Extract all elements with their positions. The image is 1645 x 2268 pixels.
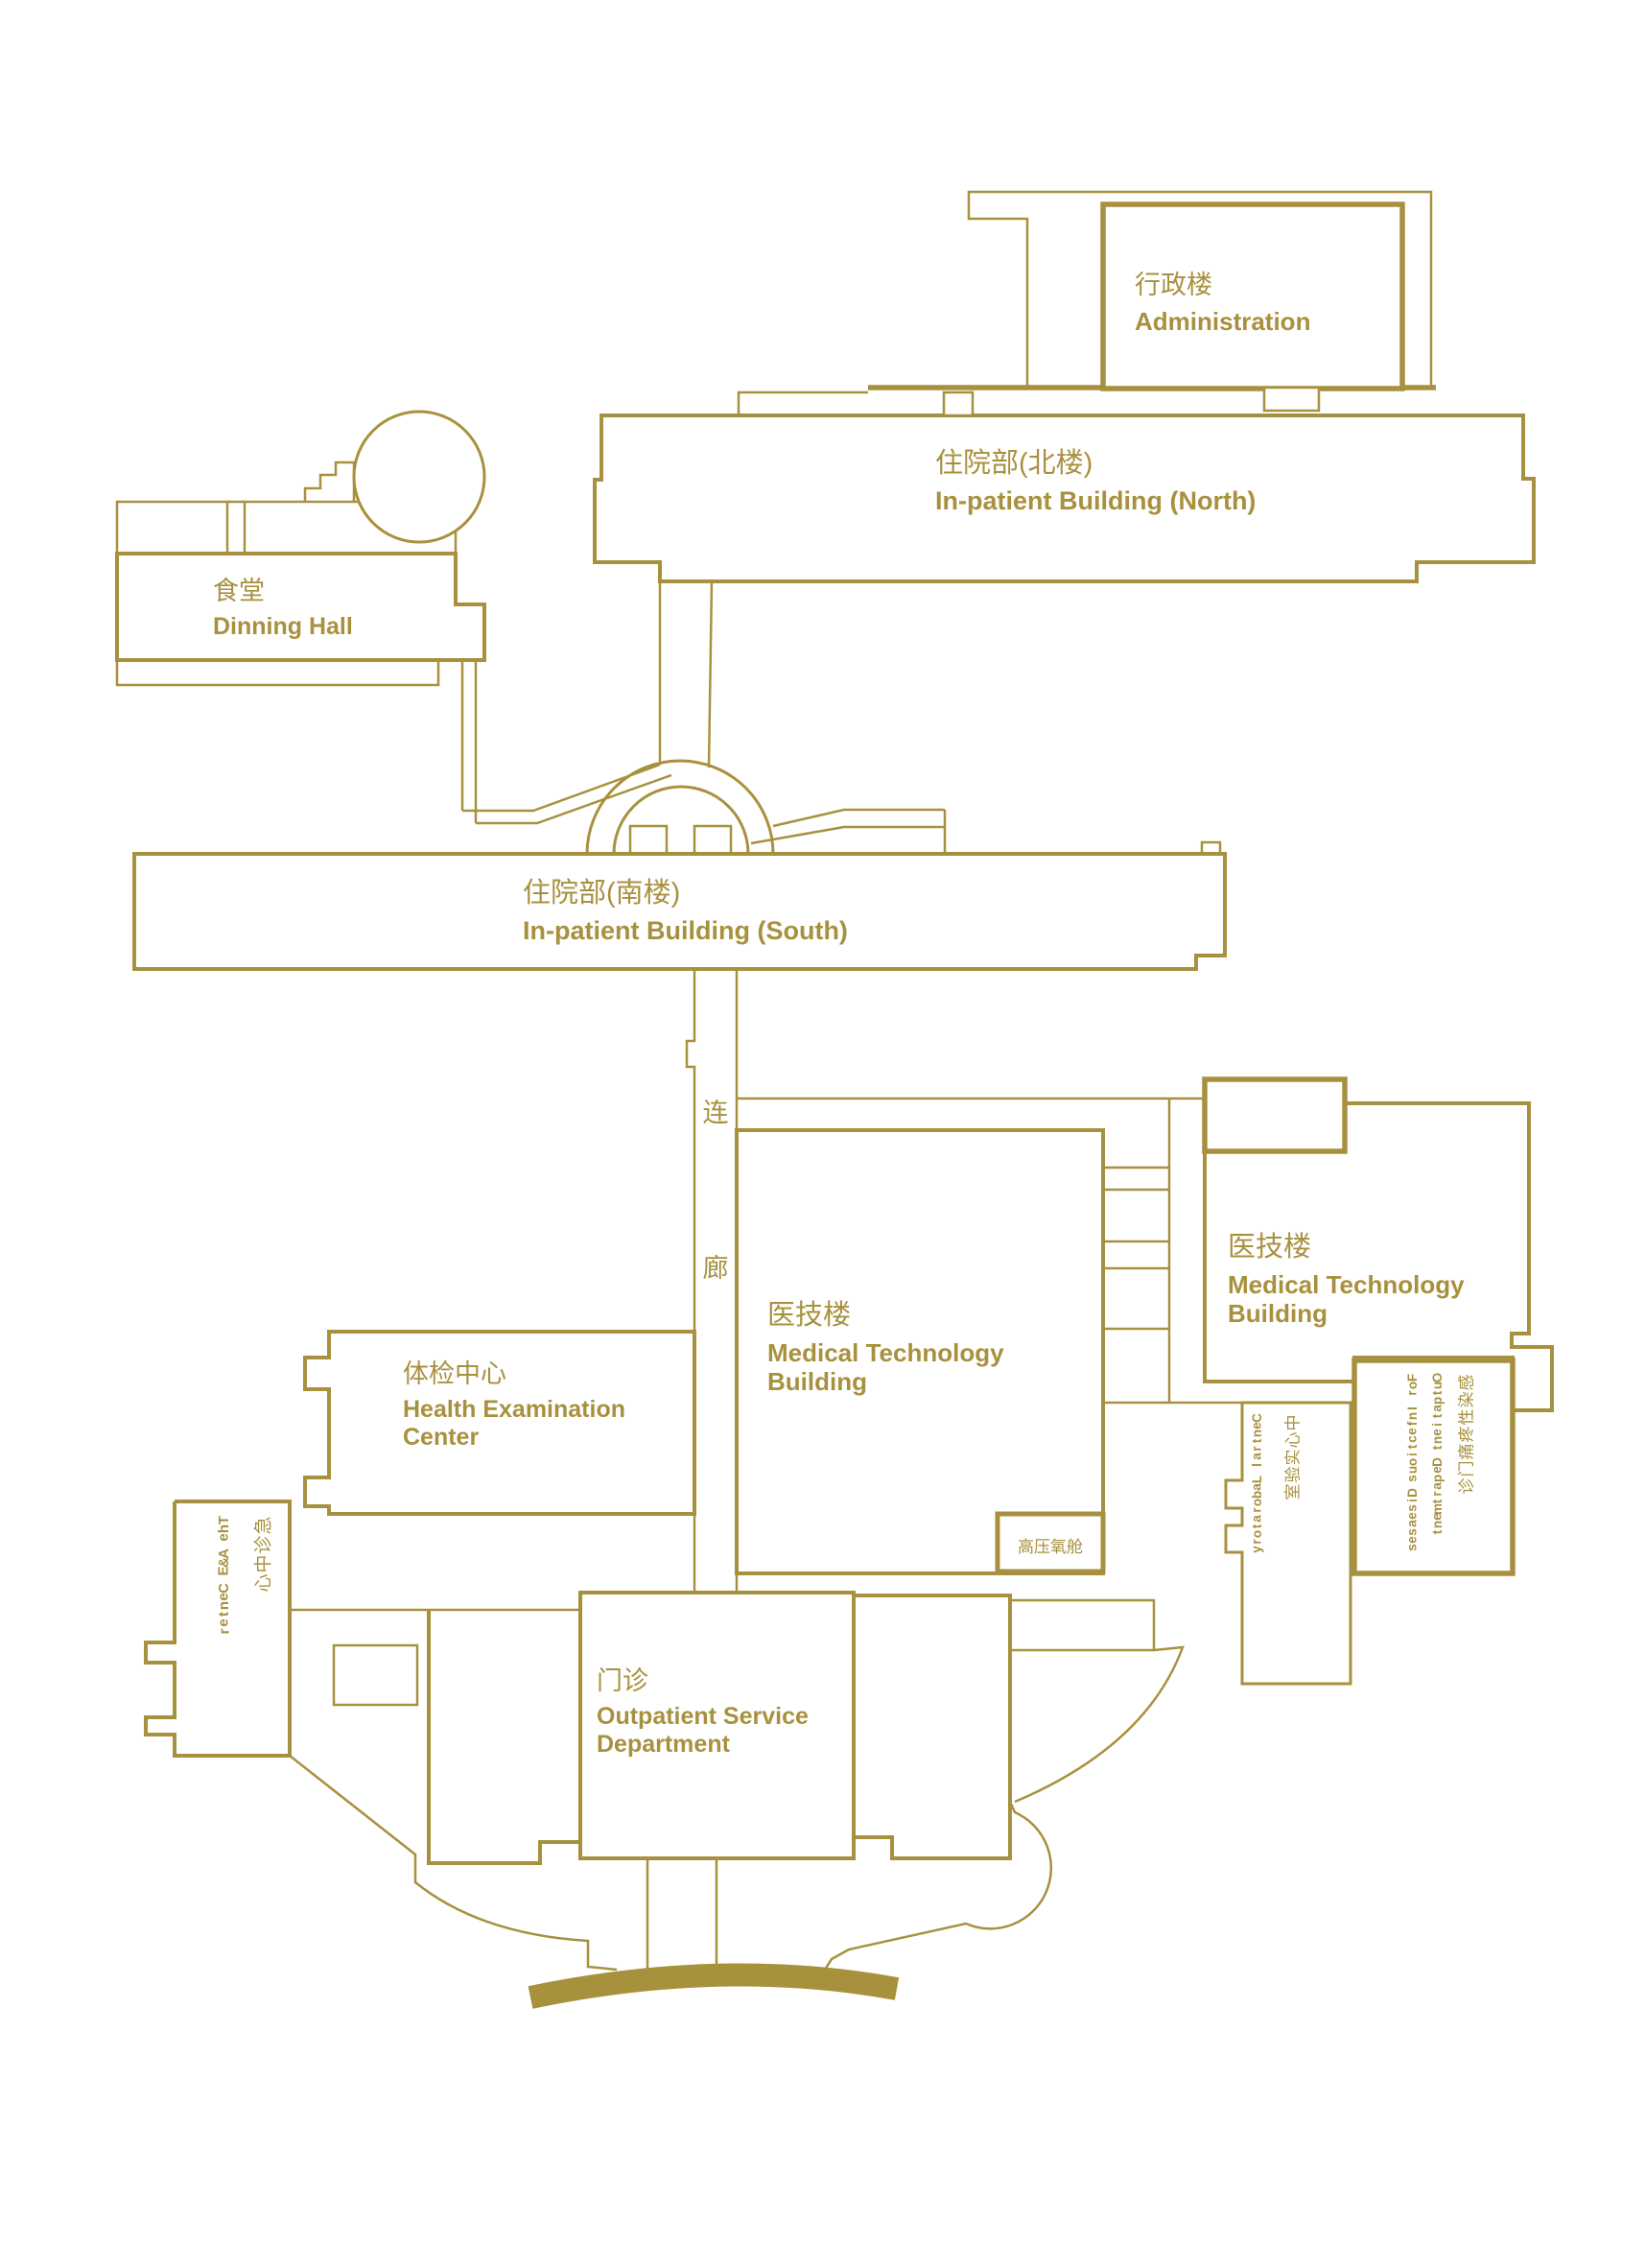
- administration-door: [1264, 388, 1319, 411]
- campus-map-svg: [0, 0, 1645, 2268]
- health-exam-label-en2: Center: [403, 1425, 625, 1451]
- outpatient-curved-bay: [825, 1802, 1051, 1970]
- outpatient-label-zh: 门诊: [597, 1667, 809, 1695]
- vertical-text-column: Outpatient Department: [1432, 1374, 1444, 1536]
- hospital-campus-map: 行政楼 Administration 住院部(北楼) In-patient Bu…: [0, 0, 1645, 2268]
- dinning-hall-label-en: Dinning Hall: [213, 614, 353, 640]
- dinning-strip-dividers: [227, 502, 245, 554]
- health-exam-label: 体检中心 Health Examination Center: [403, 1360, 625, 1451]
- medical-east-label-en1: Medical Technology: [1228, 1271, 1465, 1298]
- outpatient-entry-legs: [647, 1858, 717, 1969]
- entrance-road-arc: [530, 1974, 897, 1997]
- dinning-steps: [305, 462, 354, 502]
- ae-center-label: 急诊中心The A&E Center: [219, 1516, 273, 1636]
- medical-east-label-zh: 医技楼: [1228, 1233, 1465, 1263]
- vertical-text-column: Central Laboratory: [1253, 1414, 1262, 1553]
- medical-east-top-annex: [1205, 1079, 1345, 1151]
- inpatient-south-label-en: In-patient Building (South): [523, 917, 848, 945]
- medical-east-label: 医技楼 Medical Technology Building: [1228, 1233, 1465, 1327]
- inpatient-south-label-zh: 住院部(南楼): [523, 879, 848, 909]
- north-roof-step: [739, 392, 868, 415]
- vertical-text-column: For Infectious Diseases: [1408, 1374, 1418, 1551]
- outpatient-label-en1: Outpatient Service: [597, 1704, 809, 1730]
- outpatient-label: 门诊 Outpatient Service Department: [597, 1667, 809, 1758]
- administration-label-zh: 行政楼: [1135, 272, 1310, 299]
- vertical-text-column: 中心实验室: [1284, 1414, 1301, 1500]
- central-lab-label: 中心实验室Central Laboratory: [1253, 1414, 1301, 1553]
- dinning-walkway: [462, 660, 671, 823]
- medical-central-label-en1: Medical Technology: [767, 1339, 1004, 1366]
- outpatient-label-en2: Department: [597, 1732, 809, 1758]
- entrance-arch-tabs: [630, 826, 731, 854]
- medical-central-label-en2: Building: [767, 1368, 1004, 1395]
- outpatient-left-wing: [429, 1610, 580, 1863]
- medical-central-label-zh: 医技楼: [767, 1301, 1004, 1331]
- dinning-hall-label-zh: 食堂: [213, 578, 353, 605]
- outpatient-right-wing: [854, 1595, 1010, 1858]
- medical-east-label-en2: Building: [1228, 1300, 1465, 1327]
- health-exam-label-en1: Health Examination: [403, 1397, 625, 1423]
- inpatient-south-label: 住院部(南楼) In-patient Building (South): [523, 879, 848, 945]
- inpatient-north-door: [944, 392, 973, 415]
- outpatient-east-annex: [1010, 1600, 1183, 1802]
- dinning-lower-strip: [117, 660, 438, 685]
- hyperbaric-label: 高压氧舱: [998, 1533, 1103, 1557]
- medical-central-label: 医技楼 Medical Technology Building: [767, 1301, 1004, 1395]
- ae-side-room: [334, 1645, 417, 1705]
- inpatient-north-label: 住院部(北楼) In-patient Building (North): [935, 449, 1256, 515]
- inpatient-north-label-zh: 住院部(北楼): [935, 449, 1256, 479]
- dinning-hall-label: 食堂 Dinning Hall: [213, 578, 353, 640]
- health-exam-label-zh: 体检中心: [403, 1360, 625, 1388]
- north-link-corridor: [660, 581, 712, 768]
- entrance-arch-inner: [614, 787, 748, 854]
- corridor-label-char2: 廊: [694, 1247, 737, 1285]
- infectious-label: 感染性疼痛门诊Outpatient DepartmentFor Infectio…: [1408, 1374, 1474, 1551]
- inpatient-north-label-en: In-patient Building (North): [935, 487, 1256, 515]
- arch-side-wings: [751, 810, 945, 854]
- administration-label: 行政楼 Administration: [1135, 272, 1310, 335]
- vertical-text-column: 急诊中心: [255, 1516, 273, 1593]
- administration-label-en: Administration: [1135, 308, 1310, 335]
- corridor-label-char1: 连: [694, 1092, 737, 1129]
- round-pavilion: [354, 412, 484, 542]
- vertical-text-column: The A&E Center: [219, 1516, 229, 1636]
- vertical-text-column: 感染性疼痛门诊: [1458, 1374, 1474, 1495]
